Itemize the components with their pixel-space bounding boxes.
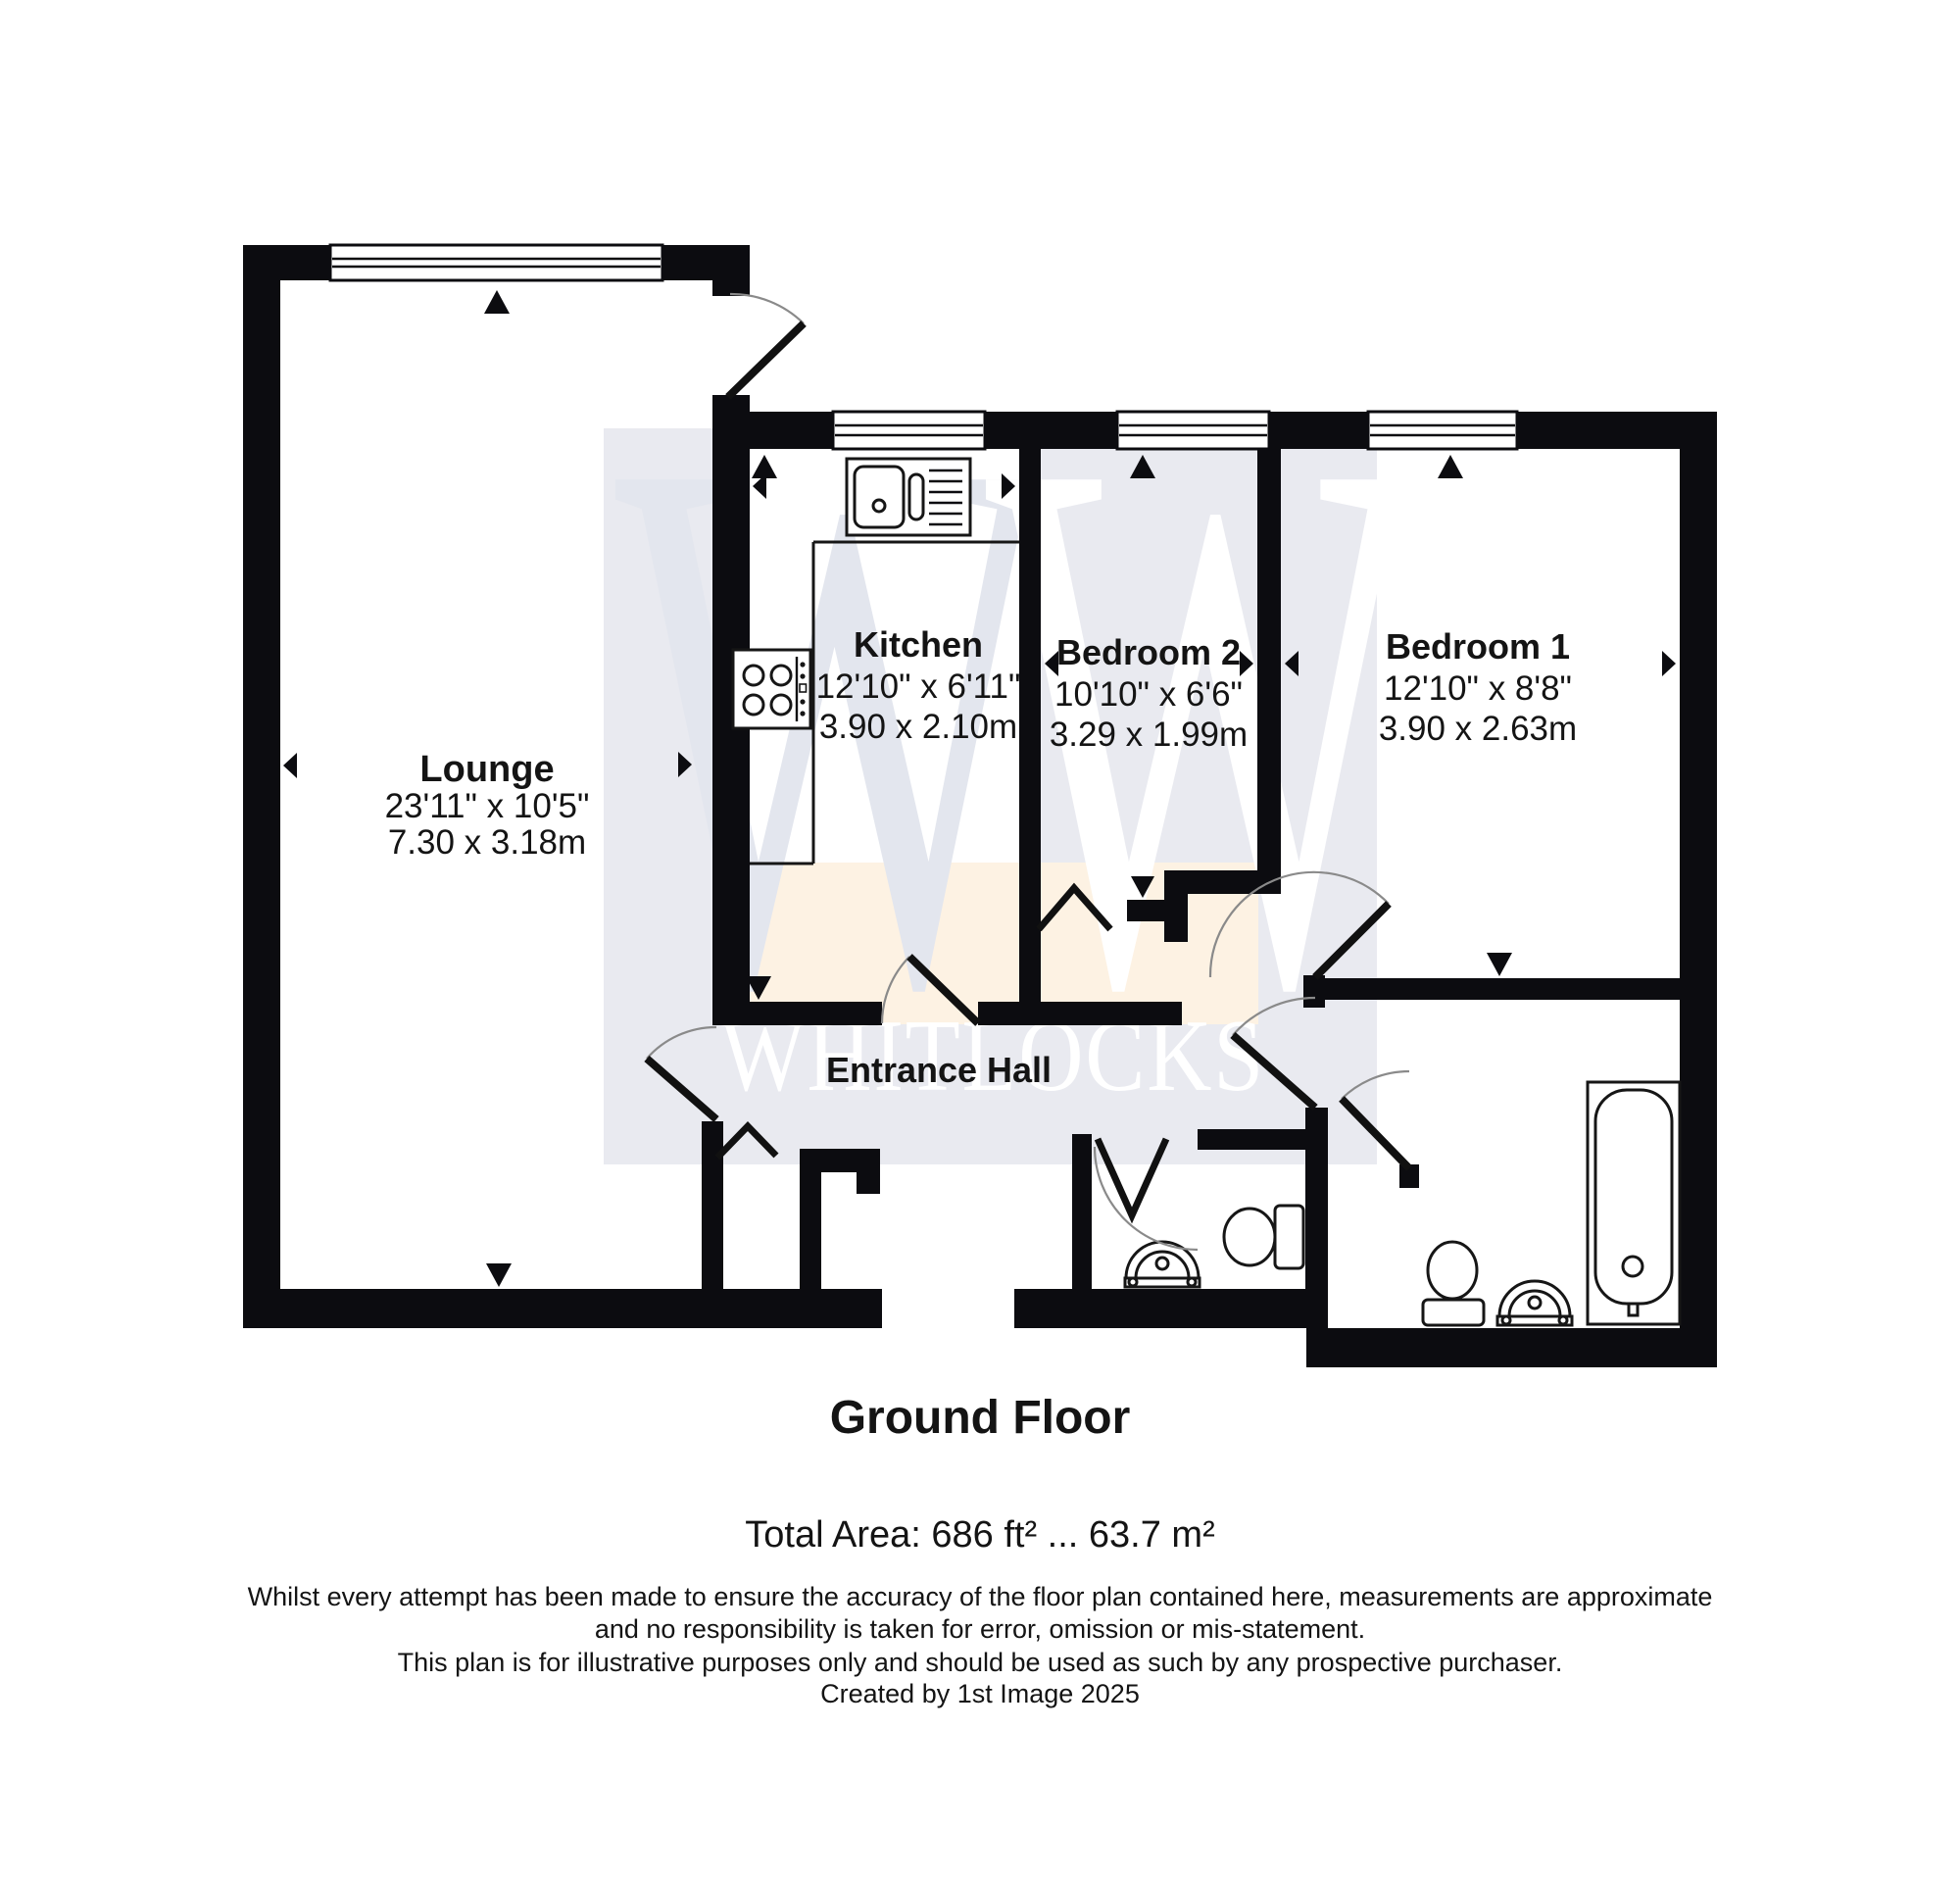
label-bedroom1-metric: 3.90 x 2.63m — [1379, 710, 1577, 748]
arrow-up-lounge — [484, 290, 510, 314]
arrow-left-lounge — [283, 753, 297, 778]
arrow-down-bedroom1 — [1487, 953, 1512, 976]
label-kitchen-imperial: 12'10" x 6'11" — [816, 667, 1021, 706]
wall-wc-north-stub — [1198, 1129, 1305, 1150]
bathroom-toilet — [1423, 1242, 1484, 1325]
wall-porch-h — [800, 1149, 880, 1172]
wall-right-exterior — [1680, 412, 1717, 1367]
disclaimer-line-2: and no responsibility is taken for error… — [595, 1614, 1365, 1644]
floorplan-page: W W WHITLOCKS — [0, 0, 1960, 1878]
wc-toilet — [1224, 1206, 1303, 1268]
wall-h2-hinge-block — [1303, 975, 1325, 1008]
wall-kitchen-bed2-divider — [1019, 449, 1041, 1025]
arrow-down-lounge — [486, 1263, 512, 1287]
label-lounge-metric: 7.30 x 3.18m — [388, 823, 586, 862]
wall-bottom-bath — [1306, 1328, 1717, 1367]
window-kitchen — [833, 412, 985, 449]
label-entrance-hall: Entrance Hall — [826, 1050, 1052, 1090]
bathtub — [1588, 1082, 1680, 1324]
wall-bottom-wc — [1014, 1289, 1328, 1328]
window-bedroom1 — [1368, 412, 1517, 449]
disclaimer-line-4: Created by 1st Image 2025 — [820, 1679, 1140, 1708]
arrow-up-bedroom1 — [1438, 455, 1463, 478]
wall-corridor-south-a — [712, 1002, 882, 1025]
wall-porch-v — [800, 1172, 821, 1289]
wall-corridor-south-b — [978, 1002, 1182, 1025]
label-lounge-imperial: 23'11" x 10'5" — [385, 787, 590, 825]
bathroom-basin — [1497, 1281, 1572, 1325]
hob — [733, 650, 810, 728]
wall-bed1-south — [1323, 978, 1680, 1000]
disclaimer-line-1: Whilst every attempt has been made to en… — [248, 1582, 1713, 1611]
label-bedroom2-metric: 3.29 x 1.99m — [1050, 716, 1248, 754]
total-area: Total Area: 686 ft² ... 63.7 m² — [745, 1514, 1214, 1556]
wall-wc-left — [1072, 1134, 1092, 1289]
footer: Ground Floor Total Area: 686 ft² ... 63.… — [248, 1392, 1713, 1708]
wall-bottom-lounge-hall — [243, 1289, 882, 1328]
arrow-right-bedroom1 — [1662, 651, 1676, 676]
label-kitchen-metric: 3.90 x 2.10m — [819, 708, 1017, 746]
label-bedroom1-name: Bedroom 1 — [1386, 626, 1570, 667]
label-lounge-name: Lounge — [419, 749, 554, 790]
disclaimer-line-3: This plan is for illustrative purposes o… — [398, 1648, 1563, 1677]
sink-unit — [847, 459, 970, 535]
label-bedroom2-name: Bedroom 2 — [1056, 632, 1241, 672]
wall-hall-west — [702, 1121, 723, 1289]
window-lounge — [330, 245, 662, 280]
wall-wc-bath-divider — [1305, 1108, 1328, 1328]
floor-label: Ground Floor — [830, 1392, 1131, 1444]
wall-bed2-bed1-divider — [1257, 449, 1281, 870]
label-bedroom2-imperial: 10'10" x 6'6" — [1054, 675, 1243, 714]
wall-porch-stub — [857, 1172, 880, 1194]
window-bedroom2 — [1117, 412, 1269, 449]
wall-lounge-left — [243, 245, 280, 1328]
wall-bed2-stub — [1127, 900, 1188, 921]
label-bedroom1-imperial: 12'10" x 8'8" — [1384, 669, 1572, 708]
label-kitchen-name: Kitchen — [854, 624, 983, 665]
floorplan-svg: W W WHITLOCKS — [0, 0, 1960, 1878]
